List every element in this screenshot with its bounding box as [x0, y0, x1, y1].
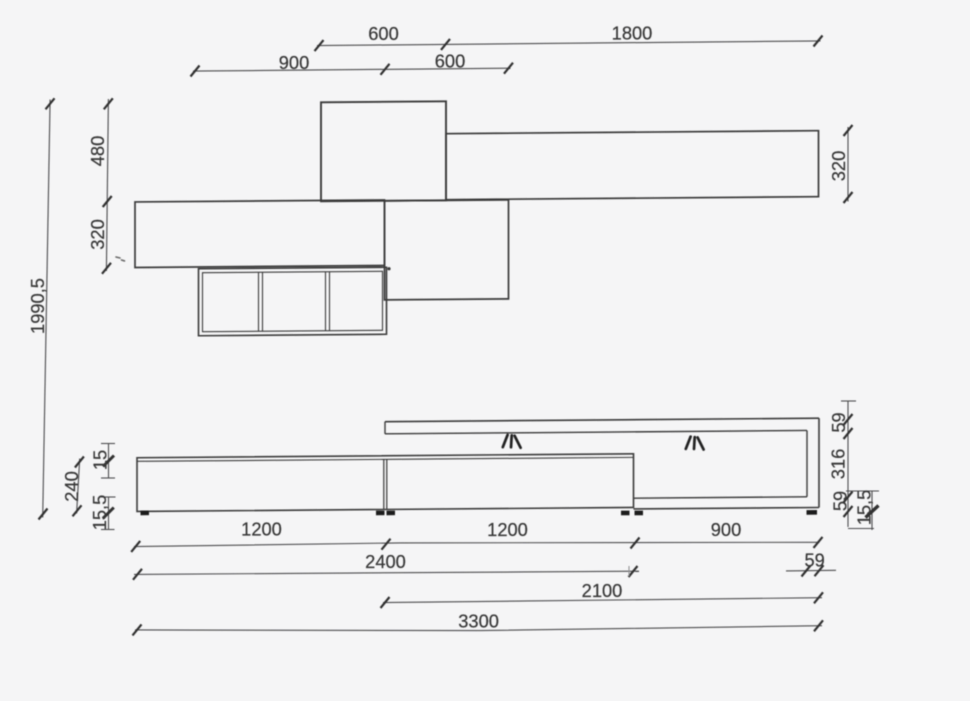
svg-text:3300: 3300 [458, 610, 499, 631]
svg-text:59: 59 [805, 550, 825, 571]
svg-text:59: 59 [830, 491, 851, 511]
svg-text:900: 900 [711, 519, 742, 540]
svg-text:1200: 1200 [241, 518, 282, 539]
svg-text:2100: 2100 [582, 580, 623, 601]
svg-text:320: 320 [87, 219, 108, 250]
svg-text:480: 480 [87, 136, 108, 167]
svg-text:600: 600 [368, 23, 399, 44]
svg-text:1800: 1800 [612, 23, 653, 44]
svg-text:316: 316 [828, 449, 849, 480]
svg-text:15: 15 [90, 450, 111, 470]
svg-text:900: 900 [279, 52, 310, 73]
svg-text:600: 600 [435, 51, 466, 72]
svg-text:1200: 1200 [487, 519, 528, 540]
svg-text:240: 240 [61, 471, 82, 502]
svg-text:1990,5: 1990,5 [27, 278, 48, 334]
svg-text:320: 320 [828, 151, 849, 182]
svg-text:15,5: 15,5 [89, 495, 110, 531]
svg-text:59: 59 [828, 412, 849, 432]
svg-text:2400: 2400 [365, 551, 406, 572]
svg-text:15,5: 15,5 [854, 490, 875, 526]
